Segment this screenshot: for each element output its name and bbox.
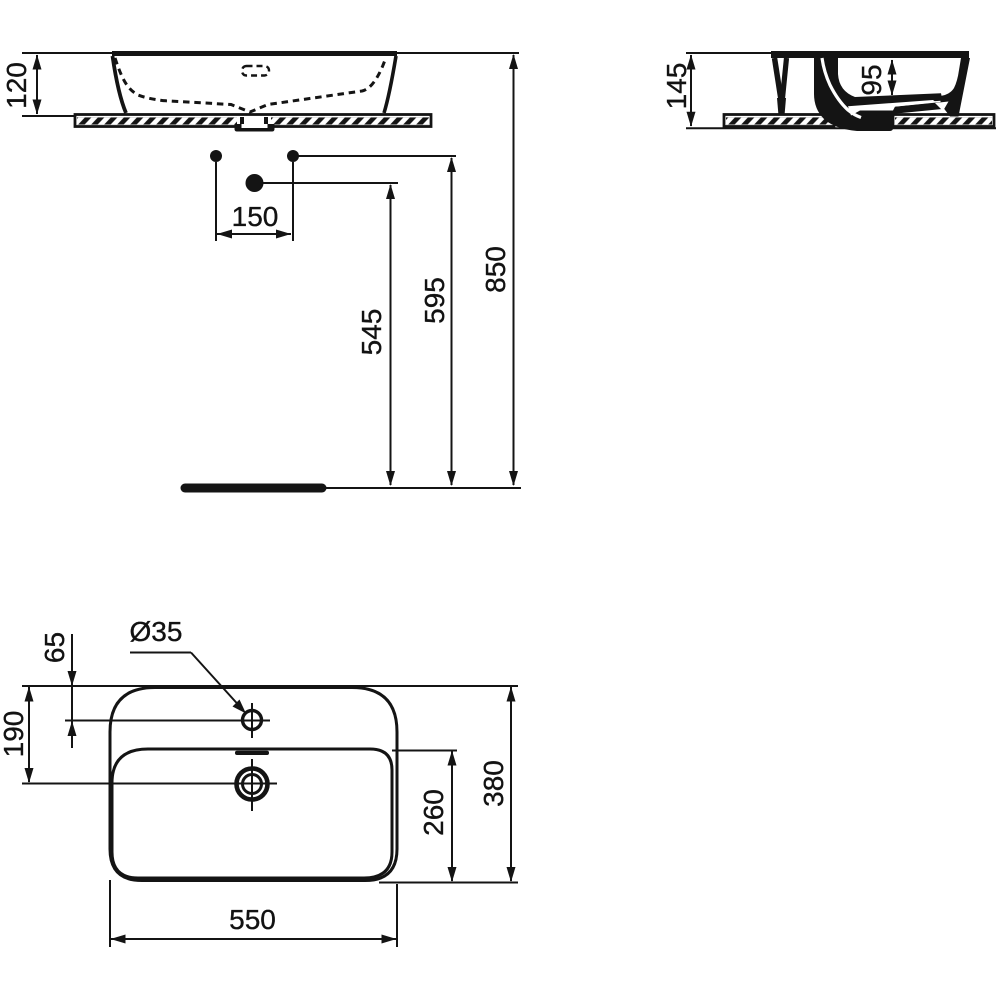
svg-text:65: 65: [39, 632, 70, 663]
svg-text:260: 260: [418, 789, 449, 836]
svg-text:545: 545: [356, 309, 387, 356]
svg-text:595: 595: [419, 277, 450, 324]
svg-text:550: 550: [229, 904, 276, 935]
svg-text:850: 850: [480, 246, 511, 293]
svg-text:120: 120: [1, 62, 32, 109]
svg-text:95: 95: [856, 64, 887, 95]
svg-text:380: 380: [478, 760, 509, 807]
svg-text:190: 190: [0, 711, 29, 758]
svg-text:Ø35: Ø35: [130, 616, 183, 647]
svg-text:145: 145: [661, 63, 692, 110]
svg-text:150: 150: [232, 201, 279, 232]
